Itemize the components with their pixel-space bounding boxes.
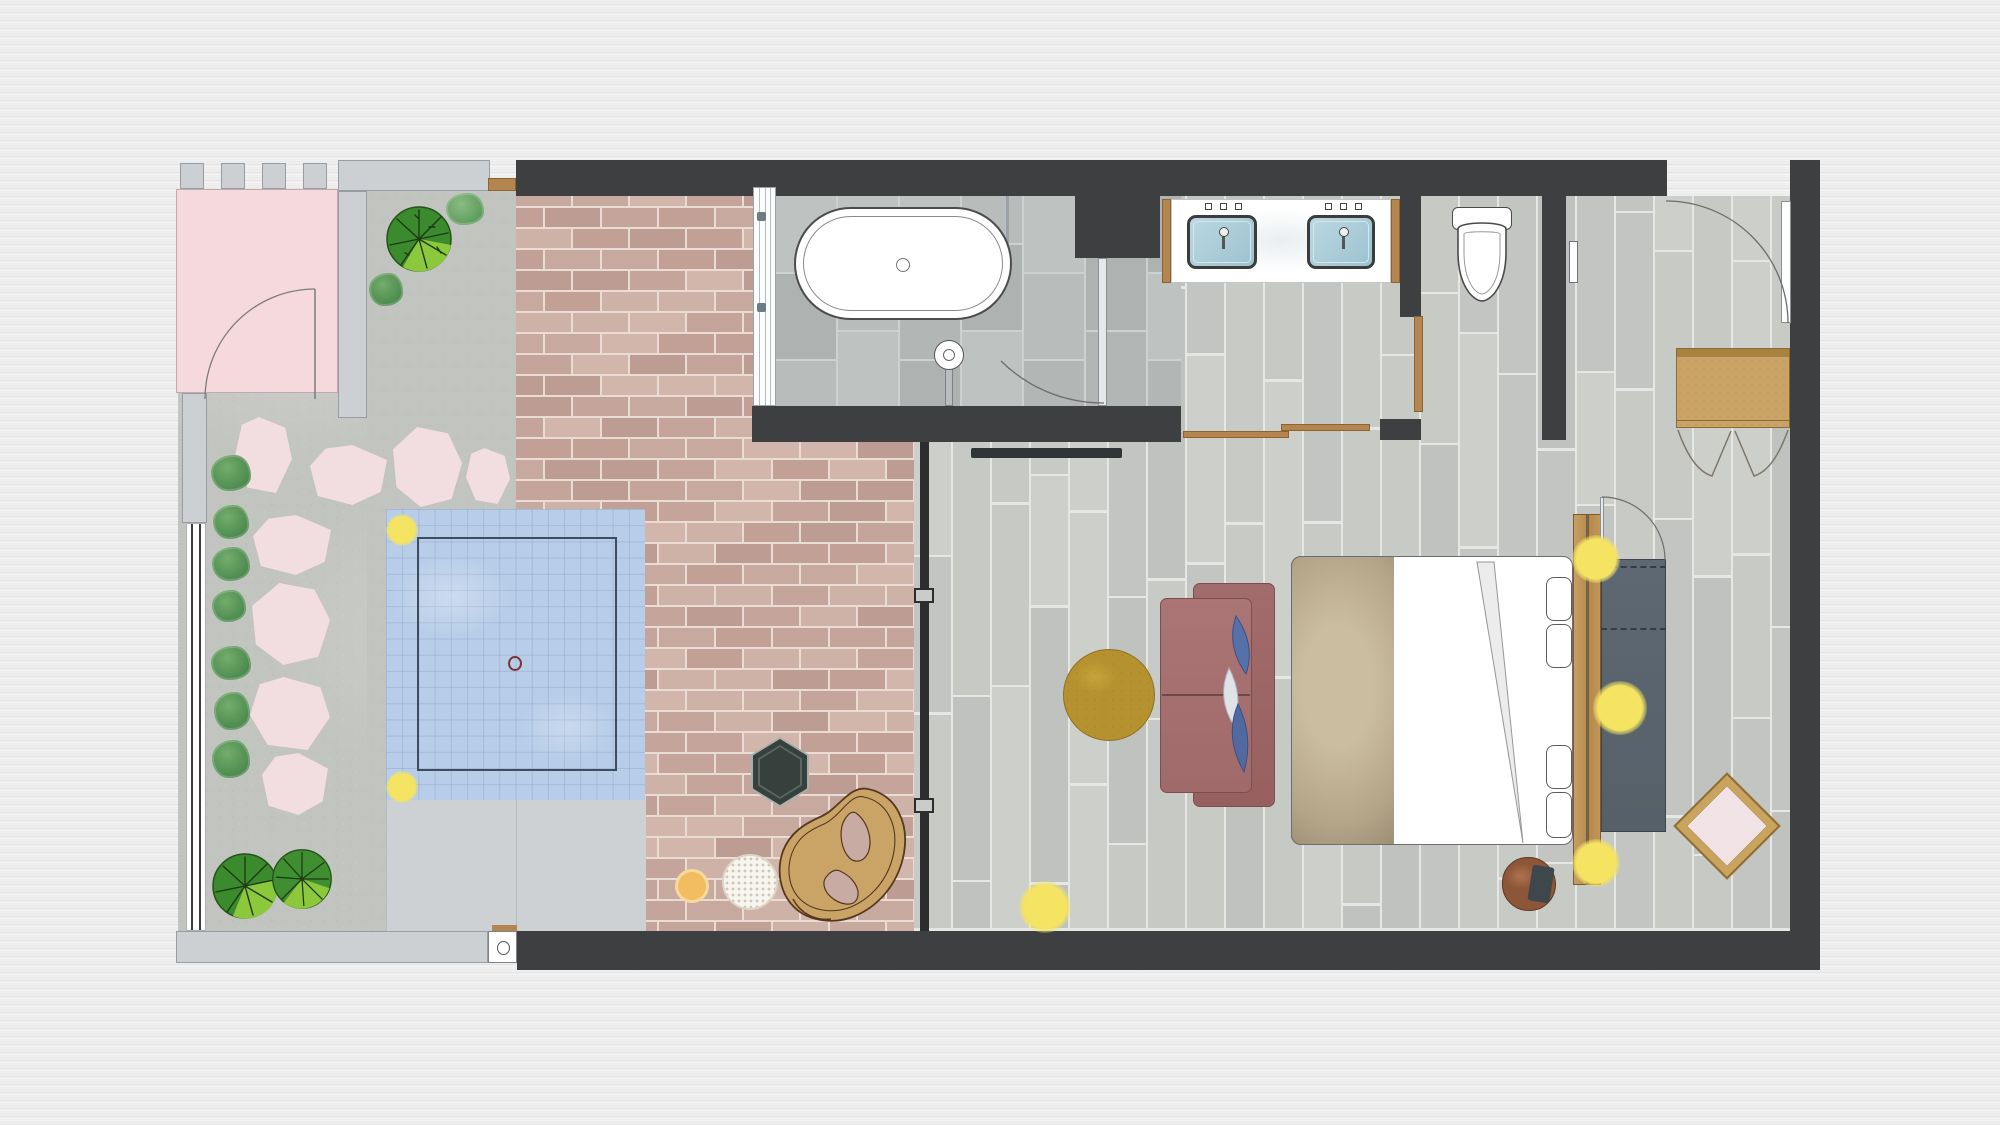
faucet <box>1339 227 1349 237</box>
garden-wall-pillar <box>338 191 367 418</box>
faucet <box>1219 227 1229 237</box>
bush <box>212 740 250 778</box>
divider-handle <box>914 798 934 813</box>
pillow <box>1546 624 1572 668</box>
wall-bath-partition <box>1075 196 1160 258</box>
faucet-handle <box>1220 203 1227 210</box>
fence-post-2 <box>221 163 245 189</box>
bush <box>211 455 251 491</box>
divider-handle <box>914 588 934 603</box>
wardrobe-shelf-dash <box>1601 628 1666 630</box>
bathroom-door-leaf <box>1098 258 1107 406</box>
faucet-handle <box>1205 203 1212 210</box>
knit-pouf <box>722 854 778 910</box>
faucet-handle <box>1325 203 1332 210</box>
floor-light <box>1019 881 1071 933</box>
wall-toilet-corner <box>1380 419 1421 440</box>
bush <box>212 547 250 581</box>
luggage-cabinet <box>1676 348 1790 428</box>
tub-filler <box>934 340 964 370</box>
wall-bottom <box>517 931 1820 970</box>
entry-door-leaf <box>1781 201 1791 323</box>
pool-light-top <box>386 514 418 546</box>
reading-light <box>1593 681 1647 735</box>
pillow <box>1546 792 1572 838</box>
round-rug <box>1063 649 1155 741</box>
wall-toilet-right <box>1542 196 1566 440</box>
bush <box>212 590 246 622</box>
reading-light <box>1572 839 1620 887</box>
pillow <box>1546 577 1572 621</box>
tree <box>211 852 279 920</box>
faucet <box>1342 236 1345 249</box>
wall-right <box>1790 160 1820 970</box>
shower-control-knob <box>757 303 766 312</box>
wall-bathroom-south <box>752 406 1181 442</box>
pool-drain <box>508 656 522 671</box>
hexagon-side-table <box>751 737 809 807</box>
pool-pump-box <box>488 931 517 963</box>
entry-patio <box>176 189 338 393</box>
deck-joint-line <box>516 796 517 931</box>
reading-light <box>1572 535 1620 583</box>
vanity-side-panel <box>1162 199 1171 283</box>
faucet <box>1222 236 1225 249</box>
toilet-tank <box>1452 207 1512 230</box>
pillow <box>1546 745 1572 789</box>
wall-top <box>516 160 1667 196</box>
faucet-handle <box>1355 203 1362 210</box>
tree <box>385 205 453 273</box>
garden-wall-top <box>338 160 490 191</box>
faucet-handle <box>1235 203 1242 210</box>
bush <box>369 273 403 306</box>
tree <box>271 848 333 910</box>
bush <box>211 646 251 680</box>
bush <box>214 692 250 730</box>
wall-toilet-left <box>1400 196 1421 317</box>
garden-wall-left <box>182 393 207 523</box>
shower-control-knob <box>757 212 766 221</box>
pool-light-bottom <box>386 771 418 803</box>
bush <box>213 505 249 539</box>
sofa-seam <box>1162 694 1250 696</box>
tv <box>971 448 1122 458</box>
bed-blanket <box>1291 556 1394 845</box>
garden-wall-bottom <box>176 931 488 963</box>
fence-post-3 <box>262 163 286 189</box>
wood-sill <box>488 178 516 191</box>
tub-filler-stem <box>945 368 953 406</box>
fence-post-1 <box>180 163 204 189</box>
pool-inner-edge <box>417 537 617 771</box>
faucet-handle <box>1340 203 1347 210</box>
wall-niche <box>1569 241 1578 283</box>
fence-post-4 <box>303 163 327 189</box>
floor-plan <box>0 0 2000 1125</box>
vanity-side-panel <box>1391 199 1400 283</box>
floor-track-rail <box>1183 431 1289 438</box>
floor-track-rail <box>1281 424 1370 431</box>
toilet-door <box>1414 316 1423 412</box>
sink-right <box>1307 215 1375 269</box>
bathtub <box>794 207 1012 320</box>
sliding-glass-divider <box>920 442 929 931</box>
garden-glass-fence <box>186 523 206 931</box>
amber-stool <box>675 869 709 903</box>
